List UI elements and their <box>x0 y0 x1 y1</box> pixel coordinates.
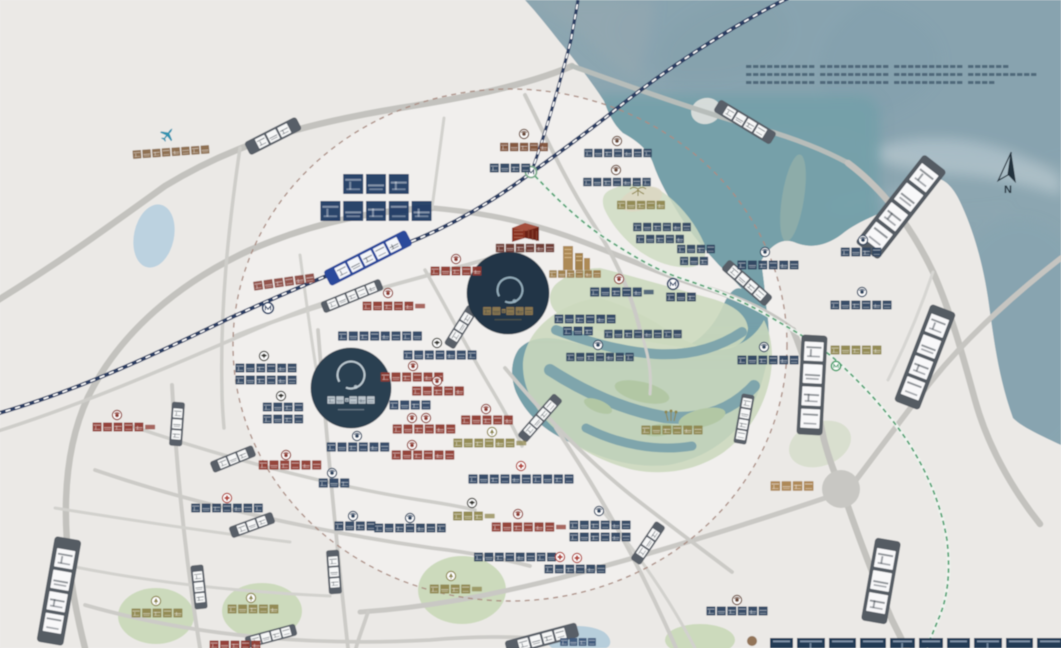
svg-text:N: N <box>1004 184 1012 196</box>
